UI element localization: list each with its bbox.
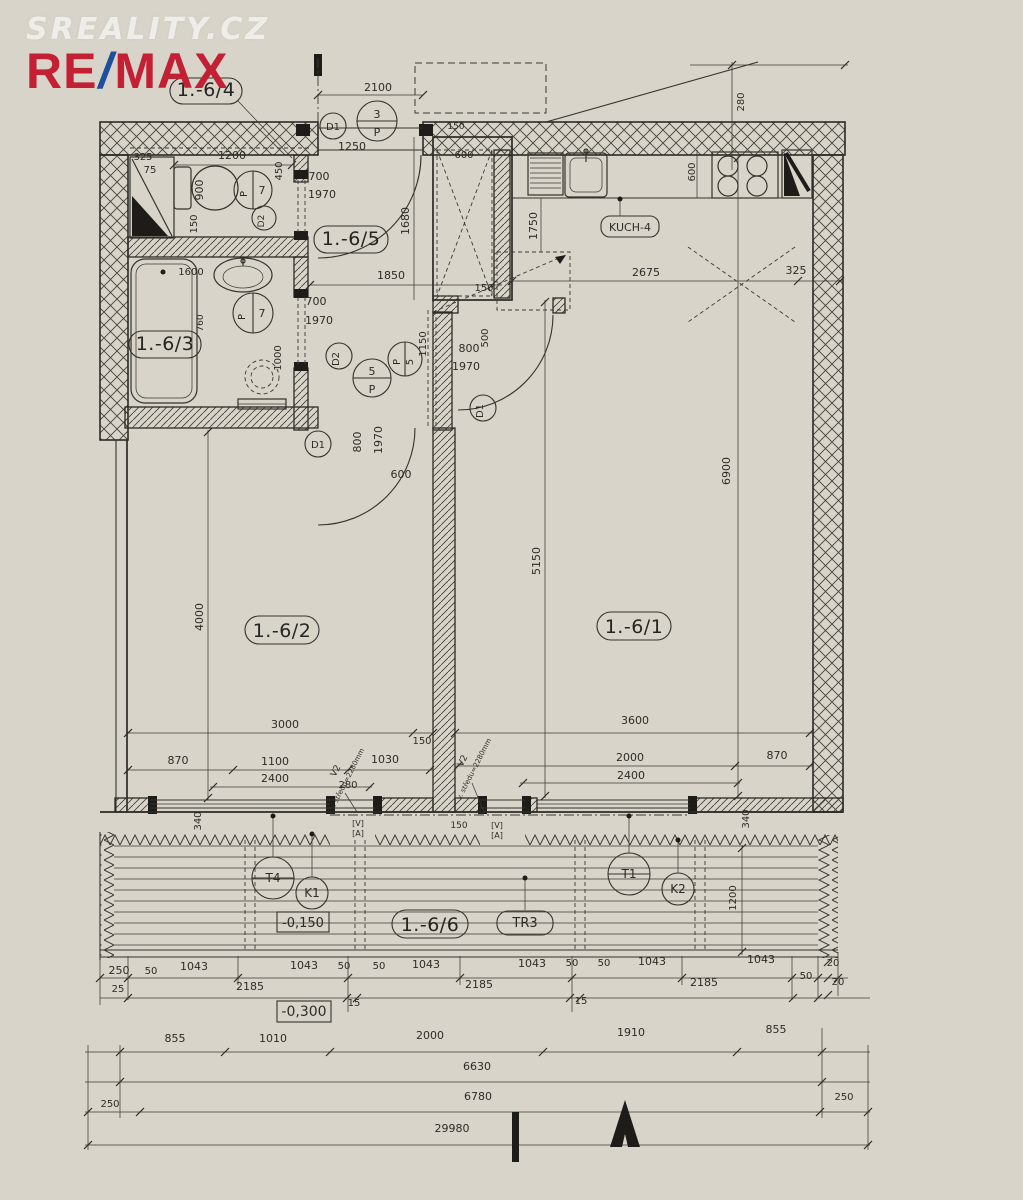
dimension-text: 340 [741,809,752,828]
dimension-text: 150 [412,736,431,747]
window-height-note: v. středu=2280mm [328,747,366,811]
boxed-label: TR3 [511,916,537,931]
door-mark-text: K2 [670,882,686,896]
dimension-text: 1250 [338,140,366,153]
dimension-text: 1000 [273,345,284,370]
dimension-chain-text: 50 [566,958,579,969]
dimension-text: 1750 [527,212,540,240]
branding: SREALITY.CZ RE/MAX [26,12,270,94]
boxed-label: -0,300 [281,1004,326,1020]
dimension-chain-text: 250 [100,1099,119,1110]
door-mark-text: 7 [259,184,266,197]
north-arrow [610,1100,640,1147]
dimension-text: 325 [133,152,152,163]
dimension-chain-text: 1043 [518,957,546,970]
decking-lines [114,846,818,945]
dimension-text: 600 [687,162,698,181]
door-mark-text: 5 [405,359,416,365]
door-mark-text: D1 [475,404,486,418]
dimension-chain-text: 6780 [464,1090,492,1103]
stove [712,152,778,198]
dimension-text: 150 [189,214,200,233]
room-number-label: 1.-6/1 [605,616,664,638]
dimension-text: 900 [193,180,206,201]
dimension-chain-text: 250 [834,1092,853,1103]
dimension-chain-text: 25 [112,984,125,995]
dimension-chain-text: 1043 [747,953,775,966]
axis-bar [512,1112,519,1162]
dimension-text: 1150 [418,331,429,356]
dimension-text: 1030 [371,753,399,766]
room-number-label: 1.-6/5 [322,228,381,250]
dimension-text: 1100 [261,755,289,768]
boxed-label: -0,150 [282,916,324,931]
door-mark-text: D2 [331,352,342,366]
dimension-text: 1200 [728,885,739,910]
dimension-text: 150 [447,122,464,132]
dimension-chain-text: 50 [598,958,611,969]
dimension-text: 75 [144,165,157,176]
dimension-text: 4000 [193,603,206,631]
door-mark-text: 5 [369,365,376,378]
dimension-chain-text: 2185 [236,980,264,993]
dimension-text: 15 [348,998,361,1009]
door-mark-text: P [369,383,376,396]
dimension-text: 150 [450,821,467,831]
dimension-chain-text: 1910 [617,1026,645,1039]
dimension-text: 450 [274,161,285,180]
dimension-text: 760 [196,314,206,331]
dimension-chain-text: 2185 [465,978,493,991]
dimension-text: 3600 [621,714,649,727]
window-height-note: V2 [329,764,343,779]
dimension-text: 1970 [305,314,333,327]
dimension-chain-text: 1010 [259,1032,287,1045]
dimension-text: 800 [351,432,364,453]
dimension-text: 1200 [218,149,246,162]
exterior-walls [100,122,845,812]
vent-mark: [V] [491,821,503,830]
dimension-chain-text: 6630 [463,1060,491,1073]
vent-mark: [A] [491,831,503,840]
dimension-text: 700 [309,170,330,183]
dimension-text: 800 [459,342,480,355]
dimension-text: 2000 [616,751,644,764]
door-mark-text: P [237,314,248,320]
dimension-chain-text: 1043 [638,955,666,968]
dims-layer: 2100125015060032575120045090015070019701… [133,81,806,1009]
dimension-text: 340 [193,811,204,830]
dimension-text: 15 [575,996,588,1007]
door-mark-text: 3 [374,108,381,121]
dimension-chain-text: 50 [338,961,351,972]
chains-layer: 2505010431043505010431043505010431043502… [100,953,853,1135]
dimension-chain-text: 20 [827,958,840,969]
dimension-text: 280 [736,92,747,111]
dimension-text: 600 [391,468,412,481]
sreality-watermark: SREALITY.CZ [26,12,270,47]
vent-mark: [V] [352,819,364,828]
dimension-text: 2675 [632,266,660,279]
dimension-chain-text: 1043 [180,960,208,973]
dimension-text: 1680 [399,207,412,235]
wc-sliding-door [298,180,305,232]
dimension-text: 2400 [261,772,289,785]
interior-walls [115,155,843,812]
dimension-text: 6900 [720,457,733,485]
floorplan-page: SREALITY.CZ RE/MAX [0,0,1023,1200]
remax-logo: RE/MAX [26,49,270,94]
dimension-chain-text: 855 [165,1032,186,1045]
dimension-chain-text: 50 [373,961,386,972]
dimension-text: 870 [168,754,189,767]
door-jamb-blocks [148,54,697,814]
door-mark-text: K1 [304,886,320,900]
door-mark-text: 7 [259,307,266,320]
dimension-chain-text: 1043 [290,959,318,972]
dimension-chain-text: 50 [145,966,158,977]
dimension-text: 5150 [530,547,543,575]
dimension-text: 500 [480,328,491,347]
dimension-text: 600 [454,150,473,161]
boxed-label: KUCH-4 [609,221,651,234]
dimension-chain-text: 855 [766,1023,787,1036]
boxed-labels-layer: KUCH-4TR3-0,150-0,300 [281,221,651,1020]
dimension-text: 1850 [377,269,405,282]
bath-sliding-door [298,297,305,366]
window-height-note: v. středu=2280mm [455,737,493,801]
room-number-label: 1.-6/3 [136,333,195,355]
door-mark-text: D1 [326,122,340,133]
dish-rack [528,153,563,195]
vent-mark: [A] [352,829,364,838]
dimension-text: 150 [474,283,493,294]
remax-logo-slash: / [98,43,113,99]
dimension-text: 870 [767,749,788,762]
dimension-chain-text: 20 [832,977,845,988]
kitchen-fixtures [512,149,813,216]
dashed-construction-lines [130,58,848,815]
bathtub-drain [161,270,166,275]
door-mark-text: T4 [265,871,281,885]
dimension-text: 1970 [308,188,336,201]
door-mark-text: P [239,191,250,197]
dimension-text: 1970 [372,426,385,454]
dimension-text: 700 [306,295,327,308]
door-mark-text: P [392,359,403,365]
dimension-chain-text: 29980 [435,1122,470,1135]
floorplan-drawing: 1.-6/41.-6/51.-6/31.-6/21.-6/11.-6/6 KUC… [0,0,1023,1200]
dimension-text: 3000 [271,718,299,731]
dimension-text: 1970 [452,360,480,373]
dimension-chain-text: 1043 [412,958,440,971]
room-number-label: 1.-6/6 [401,914,460,936]
door-mark-text: D1 [311,440,325,451]
dimension-text: 1600 [178,267,203,278]
dimension-text: 325 [786,264,807,277]
door-mark-text: D2 [257,215,267,228]
room-number-label: 1.-6/2 [253,620,312,642]
door-mark-text: T1 [621,867,637,881]
shaft [433,137,512,300]
door-mark-text: P [374,126,381,139]
dimension-text: 2400 [617,769,645,782]
toilet-tank [174,167,191,209]
dimension-chain-text: 2185 [690,976,718,989]
dimension-text: 2100 [364,81,392,94]
remax-logo-max: MAX [114,43,228,99]
dimension-chain-text: 50 [800,971,813,982]
remax-logo-re: RE [26,43,97,99]
dimension-chain-text: 2000 [416,1029,444,1042]
dimension-chain-text: 250 [109,964,130,977]
